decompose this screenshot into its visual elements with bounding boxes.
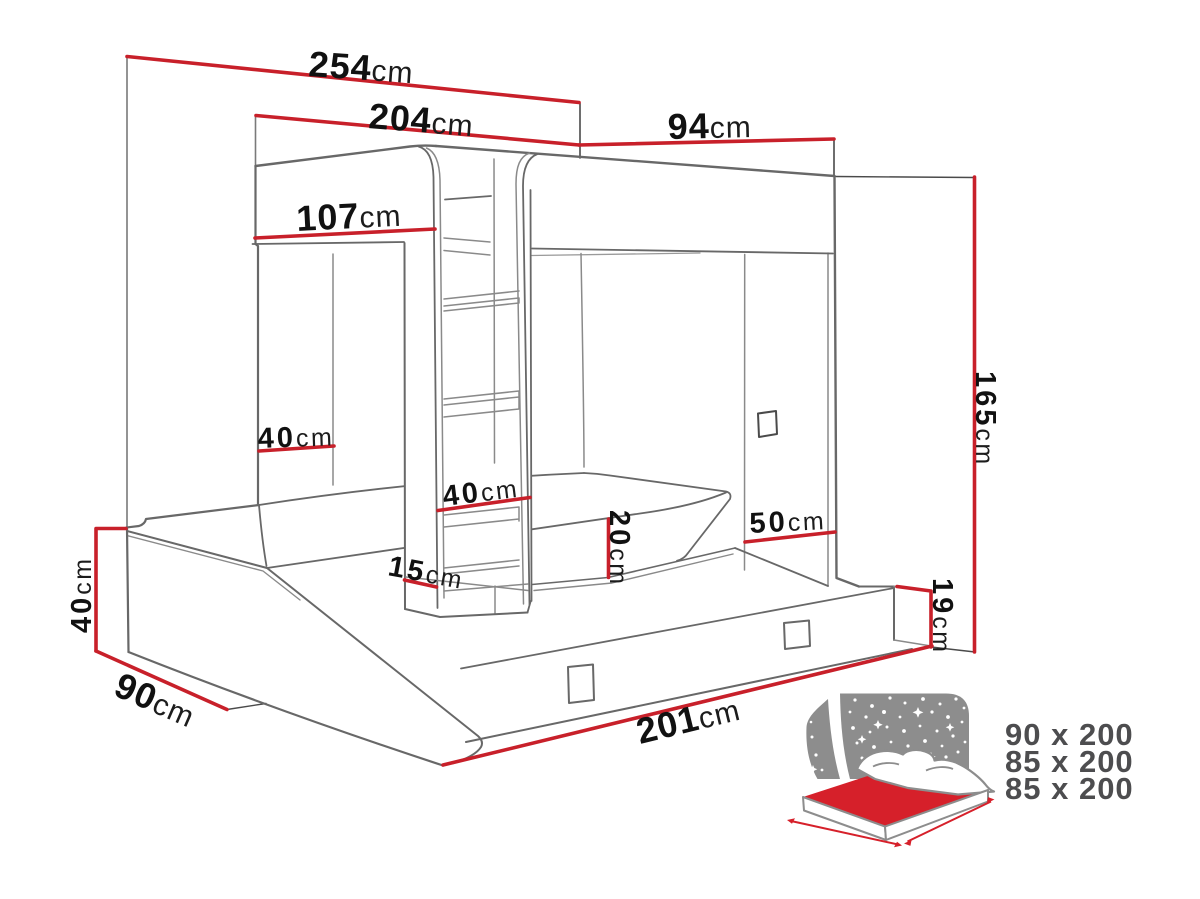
svg-text:50cm: 50cm [749,504,827,540]
svg-text:94cm: 94cm [667,104,752,147]
svg-text:204cm: 204cm [367,95,475,144]
svg-text:254cm: 254cm [307,43,415,91]
svg-text:20cm: 20cm [603,510,635,587]
svg-text:19cm: 19cm [926,578,958,655]
svg-text:40cm: 40cm [257,420,335,455]
svg-text:40cm: 40cm [66,556,98,633]
svg-text:165cm: 165cm [969,371,1001,467]
svg-text:107cm: 107cm [295,193,402,239]
svg-text:85 x 200: 85 x 200 [1005,771,1134,806]
svg-text:201cm: 201cm [632,687,744,752]
